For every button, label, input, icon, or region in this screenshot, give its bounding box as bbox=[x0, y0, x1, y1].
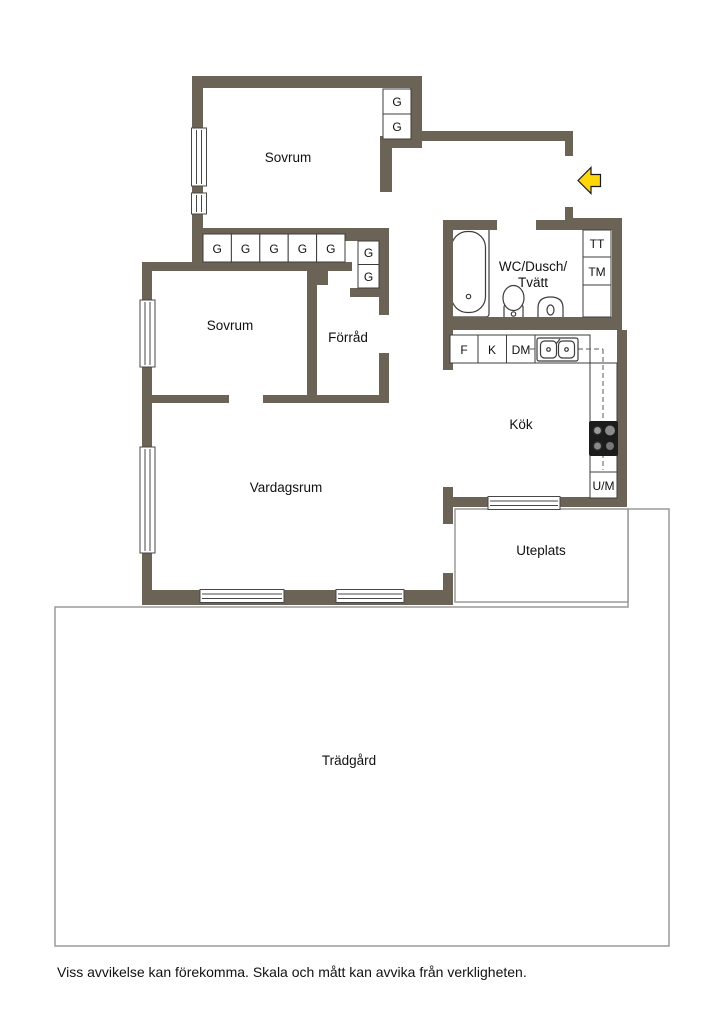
bathtub-icon bbox=[448, 227, 489, 317]
room-label-vardagsrum: Vardagsrum bbox=[250, 480, 323, 495]
wardrobe-label: G bbox=[392, 120, 401, 134]
washer-label: TM bbox=[588, 265, 605, 279]
wall-segment bbox=[612, 228, 622, 330]
bathroom-cabinet-box bbox=[583, 285, 611, 317]
room-label-uteplats: Uteplats bbox=[516, 543, 566, 558]
window-sovrum1-upper bbox=[192, 128, 207, 186]
wardrobe-label: G bbox=[298, 242, 307, 256]
floor-plan-page: Sovrum Sovrum Förråd Vardagsrum WC/Dusch… bbox=[0, 0, 724, 1024]
window-sovrum2 bbox=[140, 300, 155, 367]
wall-segment bbox=[192, 88, 203, 128]
wall-segment bbox=[565, 207, 573, 218]
wall-segment bbox=[150, 395, 229, 403]
room-label-wc-line2: Tvätt bbox=[518, 275, 548, 290]
wall-segment bbox=[536, 220, 622, 230]
wall-segment bbox=[443, 317, 622, 330]
wardrobe-label: G bbox=[269, 242, 278, 256]
wall-segment bbox=[142, 262, 352, 271]
wall-segment bbox=[263, 395, 389, 403]
fridge-label: K bbox=[488, 343, 496, 357]
room-label-sovrum-1: Sovrum bbox=[265, 150, 312, 165]
kitchen-sink-icon bbox=[537, 338, 578, 361]
wall-segment bbox=[307, 271, 317, 403]
wall-segment bbox=[565, 141, 573, 156]
window-vardagsrum-left bbox=[140, 447, 155, 553]
room-label-tradgard: Trädgård bbox=[322, 753, 376, 768]
entrance-arrow-icon bbox=[578, 168, 601, 194]
room-label-sovrum-2: Sovrum bbox=[207, 318, 254, 333]
wall-segment bbox=[317, 271, 328, 285]
sink-icon bbox=[538, 297, 563, 318]
wardrobe-label: G bbox=[241, 242, 250, 256]
wardrobe-label: G bbox=[213, 242, 222, 256]
wall-segment bbox=[192, 186, 203, 193]
window-sovrum1-lower bbox=[192, 193, 207, 214]
kitchen-counter bbox=[450, 335, 617, 498]
wardrobe-label: G bbox=[364, 246, 373, 260]
stove-icon bbox=[589, 421, 618, 456]
window-vardagsrum-bottom-2 bbox=[336, 590, 404, 603]
room-label-kok: Kök bbox=[509, 417, 533, 432]
freezer-label: F bbox=[460, 343, 467, 357]
room-label-wc-line1: WC/Dusch/ bbox=[499, 259, 568, 274]
wardrobe-label: G bbox=[364, 270, 373, 284]
dishwasher-label: DM bbox=[512, 343, 531, 357]
floor-plan: Sovrum Sovrum Förråd Vardagsrum WC/Dusch… bbox=[0, 0, 724, 1024]
wall-segment bbox=[410, 131, 573, 141]
wall-segment bbox=[142, 262, 152, 300]
room-label-forrad: Förråd bbox=[328, 330, 368, 345]
wardrobe-label: G bbox=[326, 242, 335, 256]
wall-segment bbox=[443, 573, 453, 605]
wardrobe-label: G bbox=[392, 95, 401, 109]
dryer-label: TT bbox=[590, 237, 605, 251]
wall-segment bbox=[380, 148, 392, 192]
wall-segment bbox=[142, 590, 453, 605]
wall-segment bbox=[443, 220, 453, 330]
disclaimer-text: Viss avvikelse kan förekomma. Skala och … bbox=[57, 964, 527, 980]
window-vardagsrum-bottom-1 bbox=[200, 590, 284, 603]
window-kok bbox=[488, 497, 560, 510]
wall-segment bbox=[192, 76, 422, 88]
wall-segment bbox=[617, 330, 627, 507]
oven-micro-label: U/M bbox=[593, 479, 615, 493]
wall-segment bbox=[379, 233, 389, 315]
wall-segment bbox=[142, 367, 152, 447]
toilet-icon bbox=[503, 286, 524, 321]
wall-segment bbox=[350, 288, 389, 297]
